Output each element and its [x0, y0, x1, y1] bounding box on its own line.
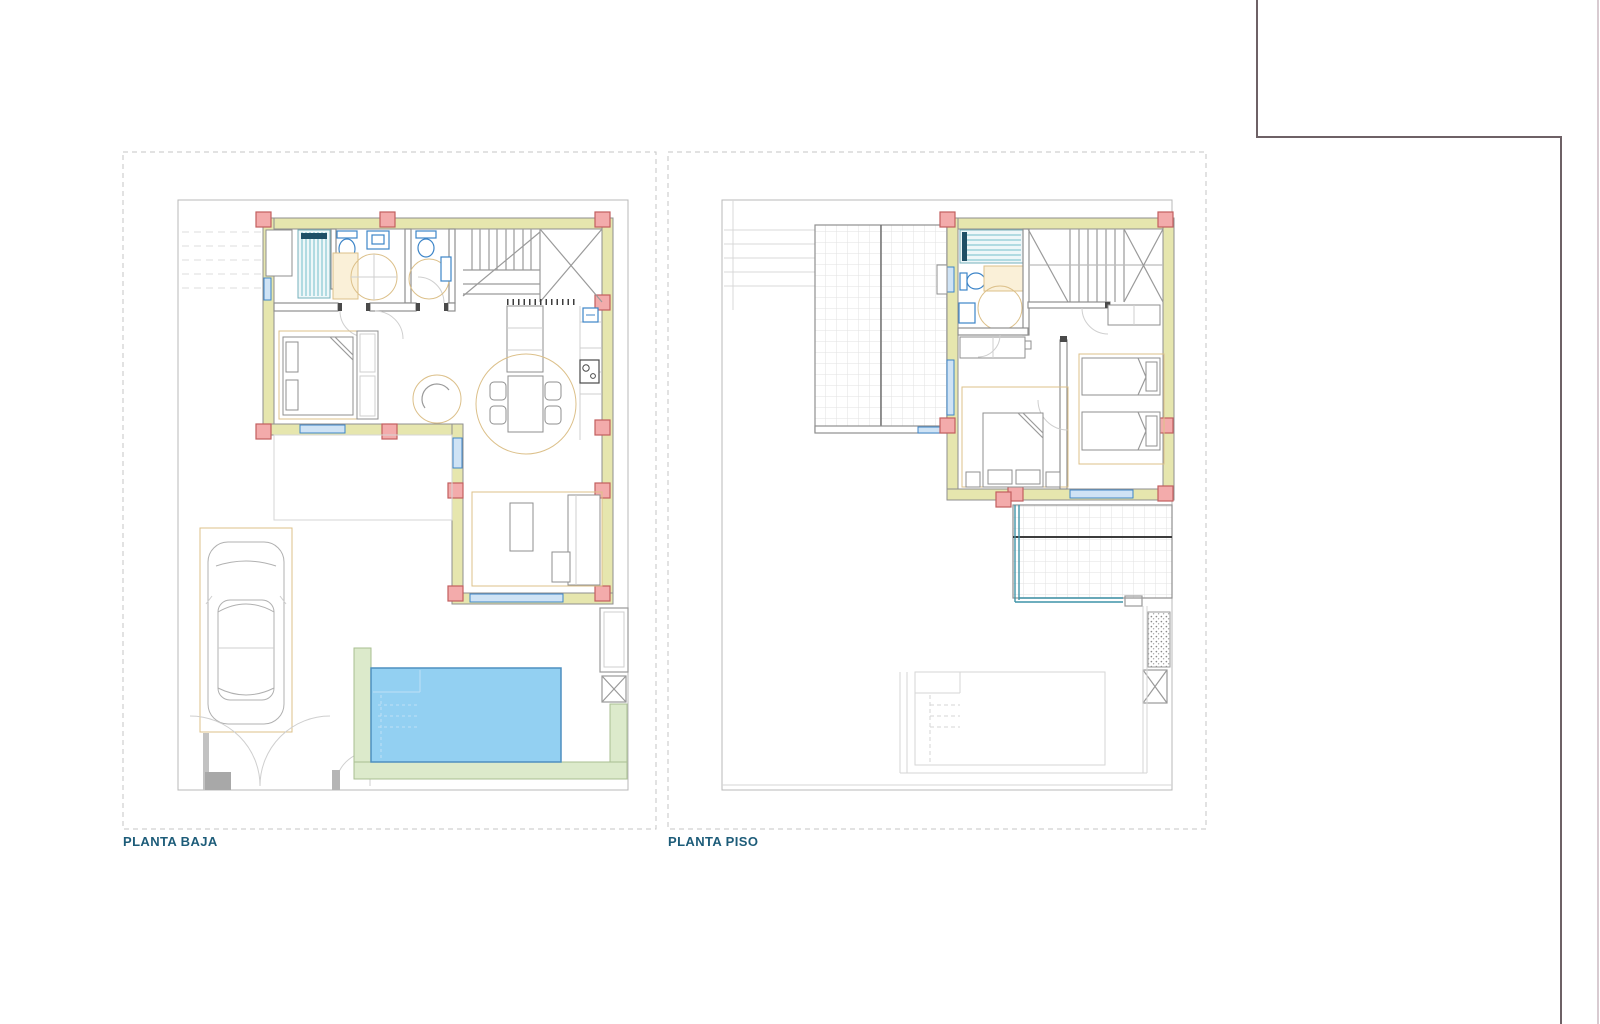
- bedroom: [279, 331, 378, 419]
- plan-planta-baja: [178, 200, 628, 790]
- shower-icon: [298, 230, 330, 298]
- toilet-icon: [416, 231, 436, 257]
- entry-closet: [266, 230, 292, 276]
- armchair-icon: [422, 384, 449, 408]
- garage: [200, 528, 292, 732]
- deck-strip-right: [610, 704, 627, 762]
- bed-icon: [1082, 412, 1160, 450]
- kitchen-island: [507, 306, 543, 372]
- hob-icon: [580, 360, 599, 383]
- shower-icon: [960, 230, 1023, 263]
- deck-strip-bottom: [354, 762, 627, 779]
- gravel-strip: [1148, 612, 1170, 667]
- window-box: [937, 265, 947, 294]
- bathroom-2: [409, 231, 451, 299]
- coffee-table: [510, 503, 533, 551]
- vanity-cabinet: [333, 253, 358, 299]
- pool-area: [354, 648, 627, 779]
- car-icon: [206, 542, 286, 724]
- armchair-rug: [413, 375, 461, 423]
- living-room: [472, 492, 602, 586]
- vanity-circle: [978, 286, 1022, 330]
- gate-pier: [205, 772, 231, 790]
- dining-area: [413, 354, 576, 454]
- pool-icon: [371, 668, 561, 762]
- master-bedroom: [962, 387, 1068, 487]
- wardrobe: [357, 331, 378, 419]
- bed-icon: [283, 337, 353, 415]
- roof-edge-lines: [724, 200, 815, 310]
- deck-strip-left: [354, 648, 371, 779]
- ground-floor-ghost: [722, 606, 1172, 785]
- plan-planta-piso: [722, 200, 1174, 790]
- twin-bedroom: [1079, 354, 1164, 464]
- pool-outline-ghost: [915, 672, 1105, 765]
- neighbor-boundary-line: [1257, 0, 1561, 1024]
- plan-title-planta-baja: PLANTA BAJA: [123, 834, 218, 849]
- bedroom-partition: [1060, 340, 1067, 489]
- kitchen-sink-icon: [583, 308, 598, 322]
- toilet-icon: [960, 273, 985, 290]
- stairs-icon: [1028, 229, 1163, 302]
- upper-terrace: [815, 225, 947, 433]
- sink-icon: [959, 303, 975, 323]
- drawing-sheet: PLANTA BAJA PLANTA PISO: [0, 0, 1600, 1024]
- bathroom: [958, 229, 1029, 335]
- sink-icon: [441, 257, 451, 281]
- nightstand: [1046, 472, 1060, 487]
- shaft-x-box: [602, 676, 626, 702]
- vanity-cabinet: [984, 266, 1023, 291]
- bed-icon: [983, 413, 1043, 487]
- plan-title-planta-piso: PLANTA PISO: [668, 834, 758, 849]
- gate-swing-right: [260, 716, 330, 786]
- stairs-icon: [463, 229, 602, 302]
- entrance-gates: [190, 716, 370, 790]
- dining-table-icon: [508, 376, 543, 432]
- nightstand: [966, 472, 980, 487]
- bed-icon: [1082, 358, 1160, 395]
- sofa-icon: [552, 495, 600, 585]
- floor-plan-canvas: [0, 0, 1600, 1024]
- lower-terrace: [1013, 505, 1172, 606]
- driveway-dashes: [182, 232, 261, 288]
- sink-icon: [367, 231, 389, 249]
- side-structures: [600, 608, 628, 702]
- gate-post: [332, 770, 340, 790]
- patio-outline: [274, 435, 452, 520]
